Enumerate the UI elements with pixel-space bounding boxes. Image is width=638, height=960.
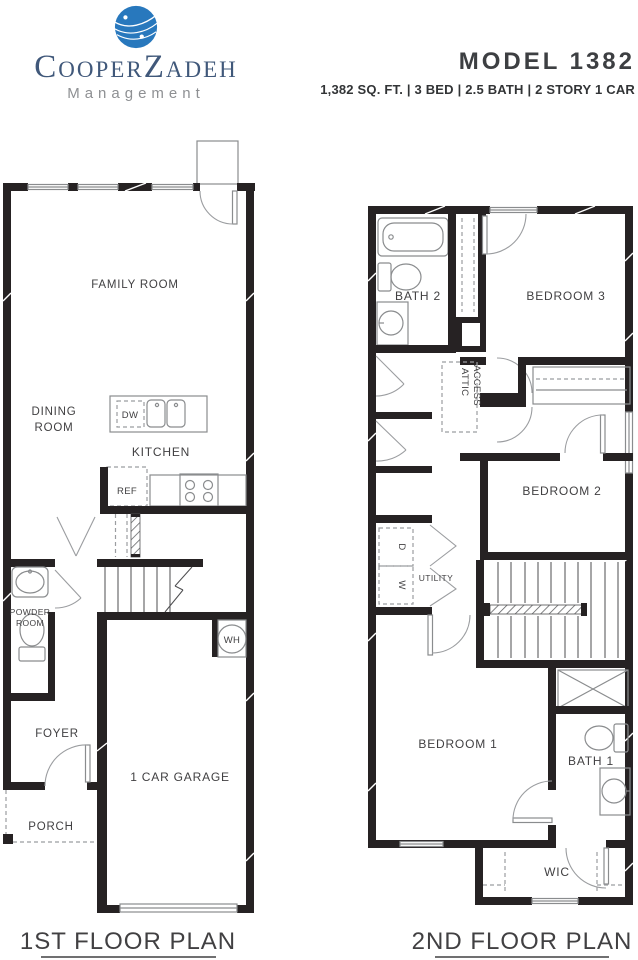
wic-door bbox=[566, 848, 609, 888]
bath2-label: BATH 2 bbox=[395, 289, 441, 303]
porch-label: PORCH bbox=[28, 821, 74, 833]
foyer-label: FOYER bbox=[35, 728, 79, 740]
bath2-door bbox=[376, 356, 404, 396]
washer-label: W bbox=[396, 580, 407, 589]
stair-rail bbox=[490, 605, 582, 614]
wic-window bbox=[532, 899, 578, 904]
attic-access-label-1: ATTIC bbox=[459, 368, 470, 396]
garage-label: 1 CAR GARAGE bbox=[130, 770, 230, 784]
first-floor-title: 1ST FLOOR PLAN bbox=[20, 928, 236, 955]
powder-room-label-2: ROOM bbox=[16, 618, 44, 628]
bedroom1-label: BEDROOM 1 bbox=[418, 737, 497, 751]
entry-door bbox=[200, 191, 237, 224]
water-heater-label: WH bbox=[224, 635, 240, 646]
hall-half-wall bbox=[131, 514, 140, 557]
wic-label: WIC bbox=[544, 865, 570, 879]
bath2 bbox=[368, 218, 456, 353]
bedroom1-window bbox=[400, 842, 443, 847]
stairs-first-floor bbox=[105, 567, 192, 612]
family-room-windows bbox=[28, 185, 193, 190]
bath1-toilet bbox=[585, 724, 628, 752]
front-door bbox=[45, 745, 90, 786]
family-room-label: FAMILY ROOM bbox=[91, 279, 179, 291]
utility-closet: D W bbox=[379, 525, 456, 606]
bedroom3-window bbox=[490, 208, 537, 213]
bedroom3-door bbox=[483, 214, 527, 254]
attic-access: ATTIC ACCESS bbox=[442, 362, 482, 432]
dryer-label: D bbox=[396, 543, 407, 550]
powder-sink bbox=[12, 567, 48, 597]
kitchen-label: KITCHEN bbox=[132, 445, 190, 459]
bedroom1-door bbox=[428, 615, 470, 655]
porch-outline bbox=[3, 790, 97, 844]
second-floor-plan: ATTIC ACCESS D W bbox=[368, 206, 633, 957]
powder-room bbox=[3, 567, 81, 701]
powder-door bbox=[55, 570, 81, 608]
refrigerator-label: REF bbox=[117, 486, 137, 497]
dishwasher-label: DW bbox=[122, 410, 138, 421]
utility-label: UTILITY bbox=[419, 573, 453, 583]
porch-post bbox=[3, 834, 13, 844]
hall-closet bbox=[448, 214, 486, 352]
bedroom3-label: BEDROOM 3 bbox=[526, 289, 605, 303]
stairs-second-floor bbox=[476, 560, 633, 668]
utility-bifold-door-1 bbox=[430, 525, 456, 566]
bedroom2-door bbox=[565, 415, 605, 453]
shower bbox=[558, 670, 628, 708]
dining-room-label-1: DINING bbox=[31, 406, 76, 418]
bath1-door bbox=[513, 781, 552, 823]
second-floor-title: 2ND FLOOR PLAN bbox=[412, 928, 633, 955]
kitchen-sink bbox=[147, 400, 185, 427]
bath2-toilet bbox=[378, 263, 421, 291]
bedroom2-label: BEDROOM 2 bbox=[522, 484, 601, 498]
attic-access-label-2: ACCESS bbox=[471, 365, 482, 406]
bedroom2-hall-door bbox=[497, 407, 532, 442]
hall-doors bbox=[57, 517, 95, 556]
bath2-sink bbox=[377, 302, 408, 345]
garage-door bbox=[120, 904, 237, 912]
water-heater: WH bbox=[212, 620, 246, 657]
floor-plan-flyer: CooperZadeh Management MODEL 1382 1,382 … bbox=[0, 0, 638, 960]
linen-closet-door bbox=[376, 421, 406, 461]
powder-room-label-1: POWDER bbox=[10, 607, 51, 617]
entry-stoop bbox=[197, 141, 238, 184]
bedroom2-window bbox=[626, 412, 633, 473]
kitchen-island: DW bbox=[110, 396, 207, 432]
bathtub bbox=[378, 218, 448, 256]
counter-and-stove bbox=[150, 474, 246, 507]
dining-room-label-2: ROOM bbox=[35, 422, 74, 434]
bath1-label: BATH 1 bbox=[568, 754, 614, 768]
first-floor-plan: DW REF bbox=[3, 141, 255, 957]
floor-plans-drawing: DW REF bbox=[0, 0, 638, 960]
